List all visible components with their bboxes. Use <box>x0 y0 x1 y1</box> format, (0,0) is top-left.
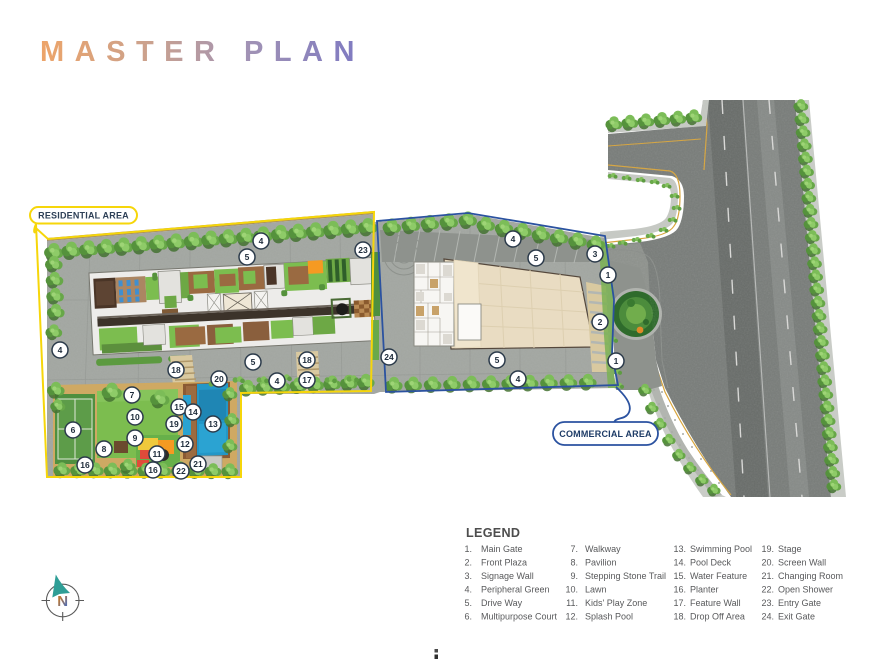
svg-text:5: 5 <box>245 252 250 262</box>
svg-text:19: 19 <box>169 419 179 429</box>
svg-text:15.: 15. <box>673 571 686 581</box>
svg-text:21.: 21. <box>761 571 774 581</box>
svg-text:12: 12 <box>180 439 190 449</box>
svg-text:18: 18 <box>302 355 312 365</box>
svg-text:20: 20 <box>214 374 224 384</box>
svg-text:Pavilion: Pavilion <box>585 558 617 568</box>
svg-text:COMMERCIAL AREA: COMMERCIAL AREA <box>559 429 652 439</box>
svg-text:16: 16 <box>80 460 90 470</box>
svg-text:4: 4 <box>259 236 264 246</box>
svg-text:19.: 19. <box>761 544 774 554</box>
svg-text:1: 1 <box>614 356 619 366</box>
svg-text:Water Feature: Water Feature <box>690 571 747 581</box>
svg-text:13: 13 <box>208 419 218 429</box>
svg-text:24: 24 <box>384 352 394 362</box>
svg-text:6: 6 <box>71 425 76 435</box>
svg-text:Exit Gate: Exit Gate <box>778 612 815 622</box>
svg-text:16.: 16. <box>673 585 686 595</box>
svg-text:RESIDENTIAL AREA: RESIDENTIAL AREA <box>38 211 129 221</box>
svg-text:6.: 6. <box>464 612 472 622</box>
svg-text:5: 5 <box>534 253 539 263</box>
svg-text:Lawn: Lawn <box>585 585 607 595</box>
svg-text:LEGEND: LEGEND <box>466 526 520 540</box>
svg-text:1.: 1. <box>464 544 472 554</box>
svg-text:20.: 20. <box>761 558 774 568</box>
svg-text:21: 21 <box>193 459 203 469</box>
svg-text:5: 5 <box>495 355 500 365</box>
svg-text:4: 4 <box>58 345 63 355</box>
svg-text:Changing Room: Changing Room <box>778 571 843 581</box>
svg-text:14.: 14. <box>673 558 686 568</box>
svg-text:Drop Off Area: Drop Off Area <box>690 612 745 622</box>
svg-text:5: 5 <box>251 357 256 367</box>
svg-text:17.: 17. <box>673 598 686 608</box>
svg-text:Stage: Stage <box>778 544 802 554</box>
svg-text:22: 22 <box>176 466 186 476</box>
svg-text:3.: 3. <box>464 571 472 581</box>
svg-text:16: 16 <box>148 465 158 475</box>
svg-text:12.: 12. <box>565 612 578 622</box>
svg-text:2: 2 <box>598 317 603 327</box>
svg-text:17: 17 <box>302 375 312 385</box>
svg-text:13.: 13. <box>673 544 686 554</box>
svg-text:8: 8 <box>102 444 107 454</box>
svg-text:4: 4 <box>516 374 521 384</box>
svg-text:4: 4 <box>275 376 280 386</box>
svg-text:14: 14 <box>188 407 198 417</box>
svg-text:Feature Wall: Feature Wall <box>690 598 741 608</box>
svg-text:3: 3 <box>593 249 598 259</box>
svg-text:Multipurpose Court: Multipurpose Court <box>481 612 558 622</box>
svg-text:Planter: Planter <box>690 585 719 595</box>
svg-text:Walkway: Walkway <box>585 544 621 554</box>
svg-text:Front Plaza: Front Plaza <box>481 558 527 568</box>
svg-text:Drive Way: Drive Way <box>481 598 523 608</box>
svg-text:7.: 7. <box>570 544 578 554</box>
svg-text:5.: 5. <box>464 598 472 608</box>
svg-text:8.: 8. <box>570 558 578 568</box>
svg-text:18.: 18. <box>673 612 686 622</box>
svg-text:Screen Wall: Screen Wall <box>778 558 826 568</box>
svg-text:N: N <box>57 593 68 610</box>
svg-text:MASTER PLAN: MASTER PLAN <box>40 36 365 68</box>
svg-text:Splash Pool: Splash Pool <box>585 612 633 622</box>
svg-text:Entry Gate: Entry Gate <box>778 598 821 608</box>
svg-text:Open Shower: Open Shower <box>778 585 833 595</box>
svg-text:Main Gate: Main Gate <box>481 544 523 554</box>
svg-text:11.: 11. <box>566 598 578 608</box>
svg-text:11: 11 <box>153 449 162 459</box>
svg-text:Kids' Play Zone: Kids' Play Zone <box>585 598 647 608</box>
svg-text:4: 4 <box>511 234 516 244</box>
svg-text:4.: 4. <box>464 585 472 595</box>
svg-text:Signage Wall: Signage Wall <box>481 571 534 581</box>
svg-text:7: 7 <box>130 390 135 400</box>
svg-text:22.: 22. <box>761 585 774 595</box>
svg-text:1: 1 <box>606 270 611 280</box>
svg-text:Stepping Stone Trail: Stepping Stone Trail <box>585 571 666 581</box>
svg-text:9.: 9. <box>570 571 578 581</box>
svg-text:10.: 10. <box>565 585 578 595</box>
svg-text:15: 15 <box>174 402 184 412</box>
svg-text:9: 9 <box>133 433 138 443</box>
svg-text:10: 10 <box>130 412 140 422</box>
svg-text:23.: 23. <box>761 598 774 608</box>
svg-text:Swimming Pool: Swimming Pool <box>690 544 752 554</box>
svg-text:2.: 2. <box>464 558 472 568</box>
svg-text:23: 23 <box>358 245 368 255</box>
svg-text:18: 18 <box>171 365 181 375</box>
svg-text:24.: 24. <box>761 612 774 622</box>
svg-text:Pool Deck: Pool Deck <box>690 558 732 568</box>
svg-text:Peripheral Green: Peripheral Green <box>481 585 550 595</box>
